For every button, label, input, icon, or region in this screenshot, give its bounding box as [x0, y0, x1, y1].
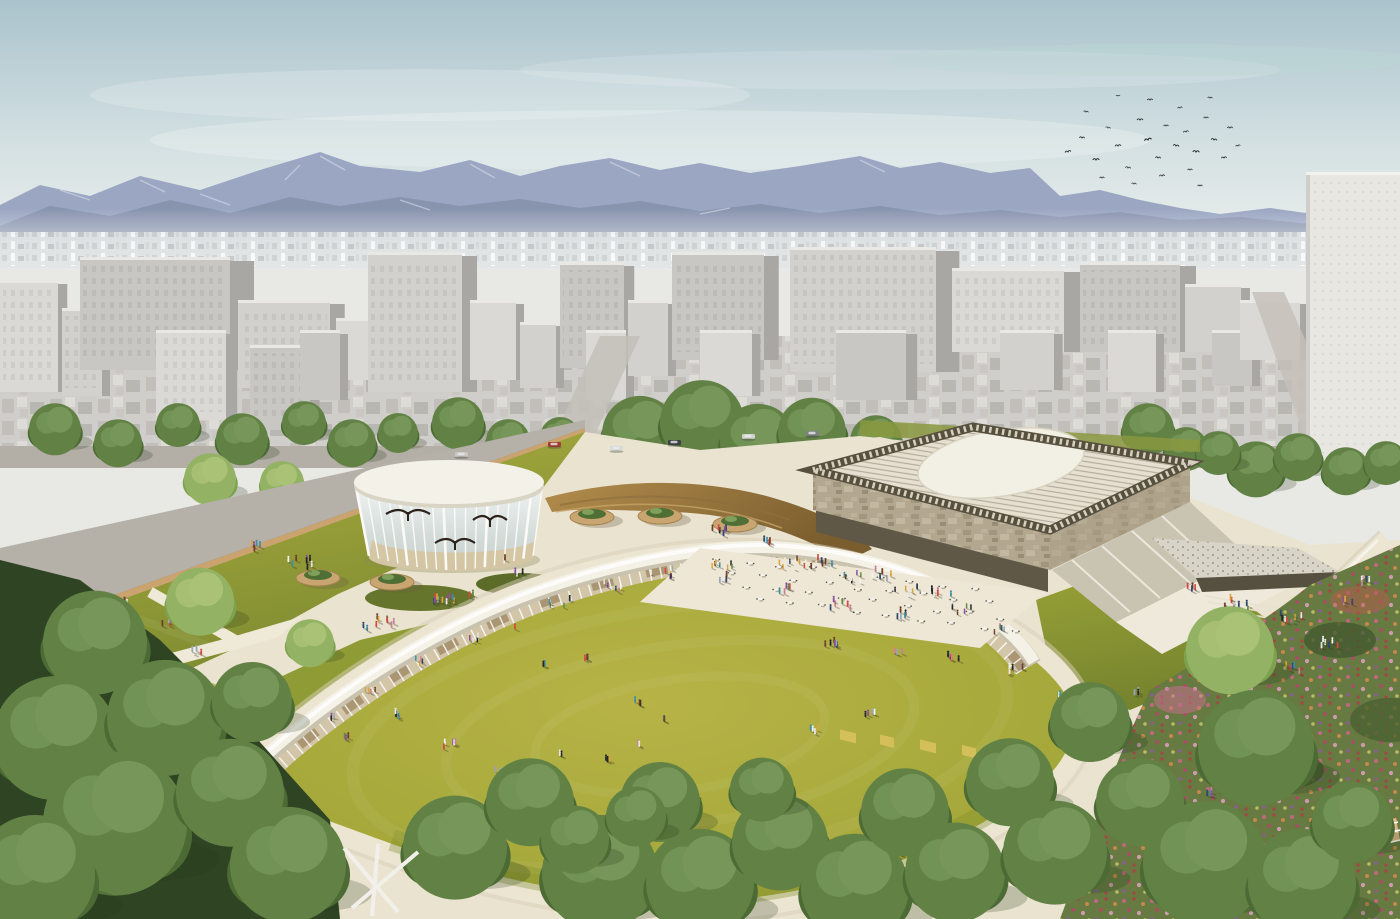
- cafe-chair: [763, 599, 765, 601]
- person-head: [123, 597, 125, 599]
- person-head: [605, 754, 607, 756]
- person: [1022, 665, 1024, 670]
- cafe-chair: [985, 600, 987, 602]
- person: [810, 565, 812, 570]
- person-head: [200, 649, 202, 651]
- building-roofline: [628, 300, 668, 303]
- building-face: [836, 330, 906, 400]
- cafe-table: [828, 581, 832, 583]
- tree-canopy-highlight: [919, 839, 961, 881]
- person: [162, 622, 164, 627]
- person-head: [390, 621, 392, 623]
- tree-canopy-highlight: [614, 796, 639, 821]
- person-head: [875, 566, 877, 568]
- person: [814, 730, 816, 735]
- cafe-chair: [844, 598, 846, 600]
- cafe-chair: [734, 572, 736, 574]
- person: [584, 656, 586, 661]
- person-head: [785, 582, 787, 584]
- person: [256, 542, 258, 547]
- person: [603, 581, 605, 585]
- cafe-chair: [949, 599, 951, 601]
- building-roofline: [952, 268, 1064, 271]
- building-side: [340, 334, 348, 400]
- person: [472, 639, 474, 643]
- person: [875, 567, 877, 572]
- person-head: [345, 734, 347, 736]
- cafe-table: [792, 579, 796, 581]
- person-head: [912, 588, 914, 590]
- person: [365, 688, 367, 692]
- person: [1194, 586, 1196, 591]
- car-roof: [458, 453, 465, 455]
- building-roofline: [1000, 330, 1054, 333]
- person: [725, 566, 727, 570]
- tree-canopy-highlight: [978, 753, 1015, 790]
- person-head: [1361, 576, 1363, 578]
- person-head: [779, 559, 781, 561]
- cafe-chair: [809, 566, 811, 568]
- cloud-streak: [890, 44, 1400, 76]
- person-head: [368, 687, 370, 689]
- person: [469, 636, 471, 640]
- person-head: [195, 645, 197, 647]
- tree-canopy-highlight: [176, 579, 205, 608]
- person: [1293, 664, 1295, 669]
- person-head: [864, 711, 866, 713]
- person-head: [1328, 642, 1330, 644]
- building-side: [1064, 272, 1082, 352]
- person: [779, 589, 781, 594]
- person: [650, 571, 652, 575]
- person: [191, 648, 193, 653]
- person-head: [905, 586, 907, 588]
- cafe-table: [935, 610, 939, 612]
- person-head: [1003, 626, 1005, 628]
- cafe-chair: [805, 591, 807, 593]
- cafe-table: [745, 586, 749, 588]
- bush: [1304, 622, 1376, 658]
- person: [931, 587, 933, 592]
- person-head: [494, 766, 496, 768]
- building-side: [752, 334, 760, 396]
- person-head: [725, 564, 727, 566]
- person: [821, 559, 823, 564]
- tree-canopy-highlight: [551, 817, 580, 846]
- person-head: [620, 584, 622, 586]
- person-head: [255, 540, 257, 542]
- cafe-table: [775, 588, 779, 590]
- person: [937, 592, 939, 597]
- cafe-table: [788, 602, 792, 604]
- person-head: [1224, 603, 1226, 605]
- person-head: [522, 568, 524, 570]
- person-head: [1320, 642, 1322, 644]
- cafe-chair: [719, 559, 721, 561]
- car-roof: [745, 435, 752, 437]
- cafe-table: [968, 610, 972, 612]
- person-head: [1210, 790, 1212, 792]
- tree-canopy-highlight: [672, 394, 707, 429]
- person: [306, 559, 308, 564]
- person: [890, 572, 892, 577]
- person-head: [514, 623, 516, 625]
- person: [1328, 643, 1330, 648]
- person: [769, 539, 771, 544]
- person-head: [472, 637, 474, 639]
- person: [1322, 638, 1324, 643]
- tree-canopy-highlight: [266, 468, 284, 486]
- cafe-table: [855, 611, 859, 613]
- person: [251, 542, 253, 547]
- person-head: [715, 559, 717, 561]
- person-head: [994, 629, 996, 631]
- person-head: [718, 524, 720, 526]
- person: [964, 610, 966, 614]
- cafe-table: [941, 585, 945, 587]
- highrise-tower: [1306, 172, 1400, 468]
- person: [1292, 619, 1294, 624]
- cafe-chair: [860, 589, 862, 591]
- tree-canopy-highlight: [191, 462, 213, 484]
- person: [639, 701, 641, 706]
- person-head: [607, 582, 609, 584]
- person: [569, 596, 571, 600]
- person: [1001, 627, 1003, 631]
- person: [620, 586, 622, 590]
- person-head: [634, 696, 636, 698]
- cafe-chair: [926, 593, 928, 595]
- person-head: [719, 562, 721, 564]
- person: [455, 740, 457, 745]
- person: [725, 578, 727, 583]
- cafe-chair: [811, 592, 813, 594]
- person-head: [1238, 601, 1240, 603]
- person-head: [1008, 668, 1010, 670]
- flower-patch: [1330, 586, 1390, 614]
- building-roofline: [80, 257, 230, 260]
- person-head: [253, 541, 255, 543]
- car-roof: [613, 447, 620, 449]
- cafe-chair: [978, 588, 980, 590]
- cafe-table: [1014, 630, 1018, 632]
- person: [370, 690, 372, 694]
- person-head: [191, 646, 193, 648]
- person-head: [394, 708, 396, 710]
- person: [830, 641, 832, 646]
- person: [420, 658, 422, 662]
- person-head: [1322, 636, 1324, 638]
- person: [1344, 597, 1346, 602]
- person: [799, 560, 801, 564]
- person-head: [711, 563, 713, 565]
- tree-canopy-highlight: [1129, 412, 1151, 434]
- building-side: [764, 256, 779, 360]
- building-roofline: [790, 247, 936, 250]
- person-head: [603, 579, 605, 581]
- person-head: [569, 595, 571, 597]
- person: [724, 528, 726, 533]
- person-head: [849, 604, 851, 606]
- person-head: [916, 583, 918, 585]
- person: [831, 562, 833, 567]
- person-head: [650, 570, 652, 572]
- cafe-chair: [824, 604, 826, 606]
- person-head: [905, 609, 907, 611]
- person: [874, 710, 876, 715]
- person: [395, 710, 397, 715]
- person: [785, 584, 787, 589]
- person: [810, 726, 812, 731]
- tree-canopy-highlight: [739, 768, 766, 795]
- person: [825, 560, 827, 565]
- person-head: [1012, 664, 1014, 666]
- person: [1238, 602, 1240, 607]
- person-head: [607, 756, 609, 758]
- person: [816, 726, 818, 731]
- tree-canopy-highlight: [384, 420, 401, 437]
- tree-canopy-highlight: [58, 608, 102, 652]
- car-shadow: [610, 450, 624, 452]
- person: [851, 577, 853, 581]
- person-head: [441, 597, 443, 599]
- person: [309, 557, 311, 562]
- person: [860, 580, 862, 584]
- tree-canopy-highlight: [223, 675, 257, 709]
- person: [731, 565, 733, 569]
- person-head: [309, 555, 311, 557]
- cafe-chair: [869, 598, 871, 600]
- tree-canopy-highlight: [1202, 438, 1220, 456]
- person-head: [789, 559, 791, 561]
- person-head: [730, 560, 732, 562]
- person-head: [1210, 787, 1212, 789]
- tree-canopy-highlight: [223, 422, 245, 444]
- person-head: [1293, 662, 1295, 664]
- person-head: [443, 743, 445, 745]
- person: [638, 742, 640, 747]
- person-head: [896, 649, 898, 651]
- person: [844, 573, 846, 577]
- person: [446, 600, 448, 605]
- person-head: [829, 639, 831, 641]
- person: [330, 717, 332, 721]
- person: [856, 571, 858, 575]
- person-head: [860, 572, 862, 574]
- cafe-chair: [756, 598, 758, 600]
- tree-canopy-highlight: [418, 813, 462, 857]
- person-head: [504, 554, 506, 556]
- cafe-chair: [775, 566, 777, 568]
- cafe-table: [922, 592, 926, 594]
- person-head: [347, 732, 349, 734]
- person-head: [446, 598, 448, 600]
- cafe-table: [908, 580, 912, 582]
- person-head: [907, 591, 909, 593]
- person-head: [810, 724, 812, 726]
- cafe-chair: [917, 620, 919, 622]
- cafe-table: [988, 600, 992, 602]
- person-head: [966, 603, 968, 605]
- person-head: [958, 655, 960, 657]
- person-head: [900, 613, 902, 615]
- cafe-chair: [859, 612, 861, 614]
- person: [897, 615, 899, 620]
- person: [449, 594, 451, 599]
- person-head: [830, 604, 832, 606]
- car-shadow: [548, 446, 562, 448]
- person-head: [1368, 576, 1370, 578]
- person-head: [1280, 610, 1282, 612]
- person: [966, 605, 968, 609]
- person-head: [851, 575, 853, 577]
- person-head: [1001, 625, 1003, 627]
- building-windows: [3, 288, 55, 384]
- building-roofline: [586, 330, 626, 333]
- person-head: [933, 590, 935, 592]
- person: [1246, 602, 1248, 607]
- building-roofline: [470, 300, 516, 303]
- person-head: [779, 587, 781, 589]
- cafe-chair: [875, 599, 877, 601]
- person-head: [295, 555, 297, 557]
- person: [1230, 596, 1232, 601]
- person-head: [291, 560, 293, 562]
- person: [1337, 644, 1339, 649]
- person-head: [731, 564, 733, 566]
- cafe-chair: [815, 566, 817, 568]
- person: [1187, 584, 1189, 589]
- person-head: [374, 687, 376, 689]
- person: [1331, 639, 1333, 644]
- tree-canopy-highlight: [613, 408, 645, 440]
- building-roofline: [560, 262, 624, 265]
- person: [711, 565, 713, 569]
- person: [721, 576, 723, 581]
- person-head: [259, 541, 261, 543]
- circular-glass-pavilion: [354, 460, 544, 573]
- person-head: [386, 617, 388, 619]
- person-head: [1137, 687, 1139, 689]
- building-roofline: [156, 330, 226, 333]
- person-head: [721, 575, 723, 577]
- cafe-table: [730, 572, 734, 574]
- building-windows: [371, 260, 459, 384]
- person: [789, 560, 791, 564]
- person: [824, 642, 826, 647]
- building-roofline: [1108, 330, 1156, 333]
- person: [867, 711, 869, 716]
- building-roofline: [672, 252, 764, 255]
- person-head: [1229, 594, 1231, 596]
- person-head: [469, 635, 471, 637]
- cafe-chair: [753, 563, 755, 565]
- park-museum-aerial-rendering: [0, 0, 1400, 919]
- person: [307, 565, 309, 570]
- building-windows: [159, 338, 223, 412]
- person-head: [477, 633, 479, 635]
- person: [970, 606, 972, 610]
- tree-canopy-highlight: [63, 775, 123, 835]
- cafe-chair: [796, 580, 798, 582]
- person: [910, 589, 912, 593]
- person-head: [814, 728, 816, 730]
- person: [912, 590, 914, 594]
- person-head: [444, 738, 446, 740]
- person-head: [446, 595, 448, 597]
- cafe-chair: [938, 586, 940, 588]
- person-head: [1292, 610, 1294, 612]
- person-head: [377, 616, 379, 618]
- person-head: [452, 594, 454, 596]
- building-face: [1000, 330, 1054, 390]
- person-head: [784, 588, 786, 590]
- tree-canopy-highlight: [1198, 621, 1235, 658]
- person-head: [843, 572, 845, 574]
- tree-canopy-highlight: [246, 826, 295, 875]
- person: [670, 575, 672, 579]
- person: [378, 618, 380, 623]
- person: [672, 567, 674, 571]
- building-side: [1156, 334, 1164, 392]
- person: [830, 606, 832, 611]
- person-head: [1008, 663, 1010, 665]
- person-head: [910, 587, 912, 589]
- cafe-chair: [981, 628, 983, 630]
- person-head: [397, 711, 399, 713]
- person: [1321, 644, 1323, 649]
- person-head: [890, 570, 892, 572]
- person: [952, 606, 954, 610]
- person: [1365, 578, 1367, 583]
- person: [896, 651, 898, 656]
- person-head: [874, 709, 876, 711]
- cafe-chair: [939, 611, 941, 613]
- cafe-chair: [910, 605, 912, 607]
- tree-canopy-highlight: [36, 412, 58, 434]
- person-head: [454, 738, 456, 740]
- person: [1137, 691, 1139, 696]
- person-head: [516, 570, 518, 572]
- tree-canopy-highlight: [1160, 822, 1212, 874]
- cafe-chair: [956, 599, 958, 601]
- person-head: [1191, 585, 1193, 587]
- person-head: [833, 637, 835, 639]
- person-head: [420, 656, 422, 658]
- tree-canopy-highlight: [1281, 441, 1301, 461]
- person: [1293, 612, 1295, 617]
- person: [386, 618, 388, 623]
- person-head: [615, 586, 617, 588]
- person: [812, 727, 814, 732]
- person-head: [901, 648, 903, 650]
- person-head: [618, 588, 620, 590]
- cafe-chair: [839, 575, 841, 577]
- person: [894, 588, 896, 592]
- person-head: [821, 557, 823, 559]
- person: [886, 577, 888, 582]
- cafe-chair: [883, 577, 885, 579]
- person: [817, 556, 819, 561]
- person-head: [877, 566, 879, 568]
- building-roofline: [300, 330, 340, 333]
- person: [1211, 792, 1213, 797]
- cafe-table: [820, 604, 824, 606]
- cafe-chair: [765, 575, 767, 577]
- tree-canopy-highlight: [1323, 795, 1357, 829]
- person-head: [766, 537, 768, 539]
- cafe-chair: [892, 590, 894, 592]
